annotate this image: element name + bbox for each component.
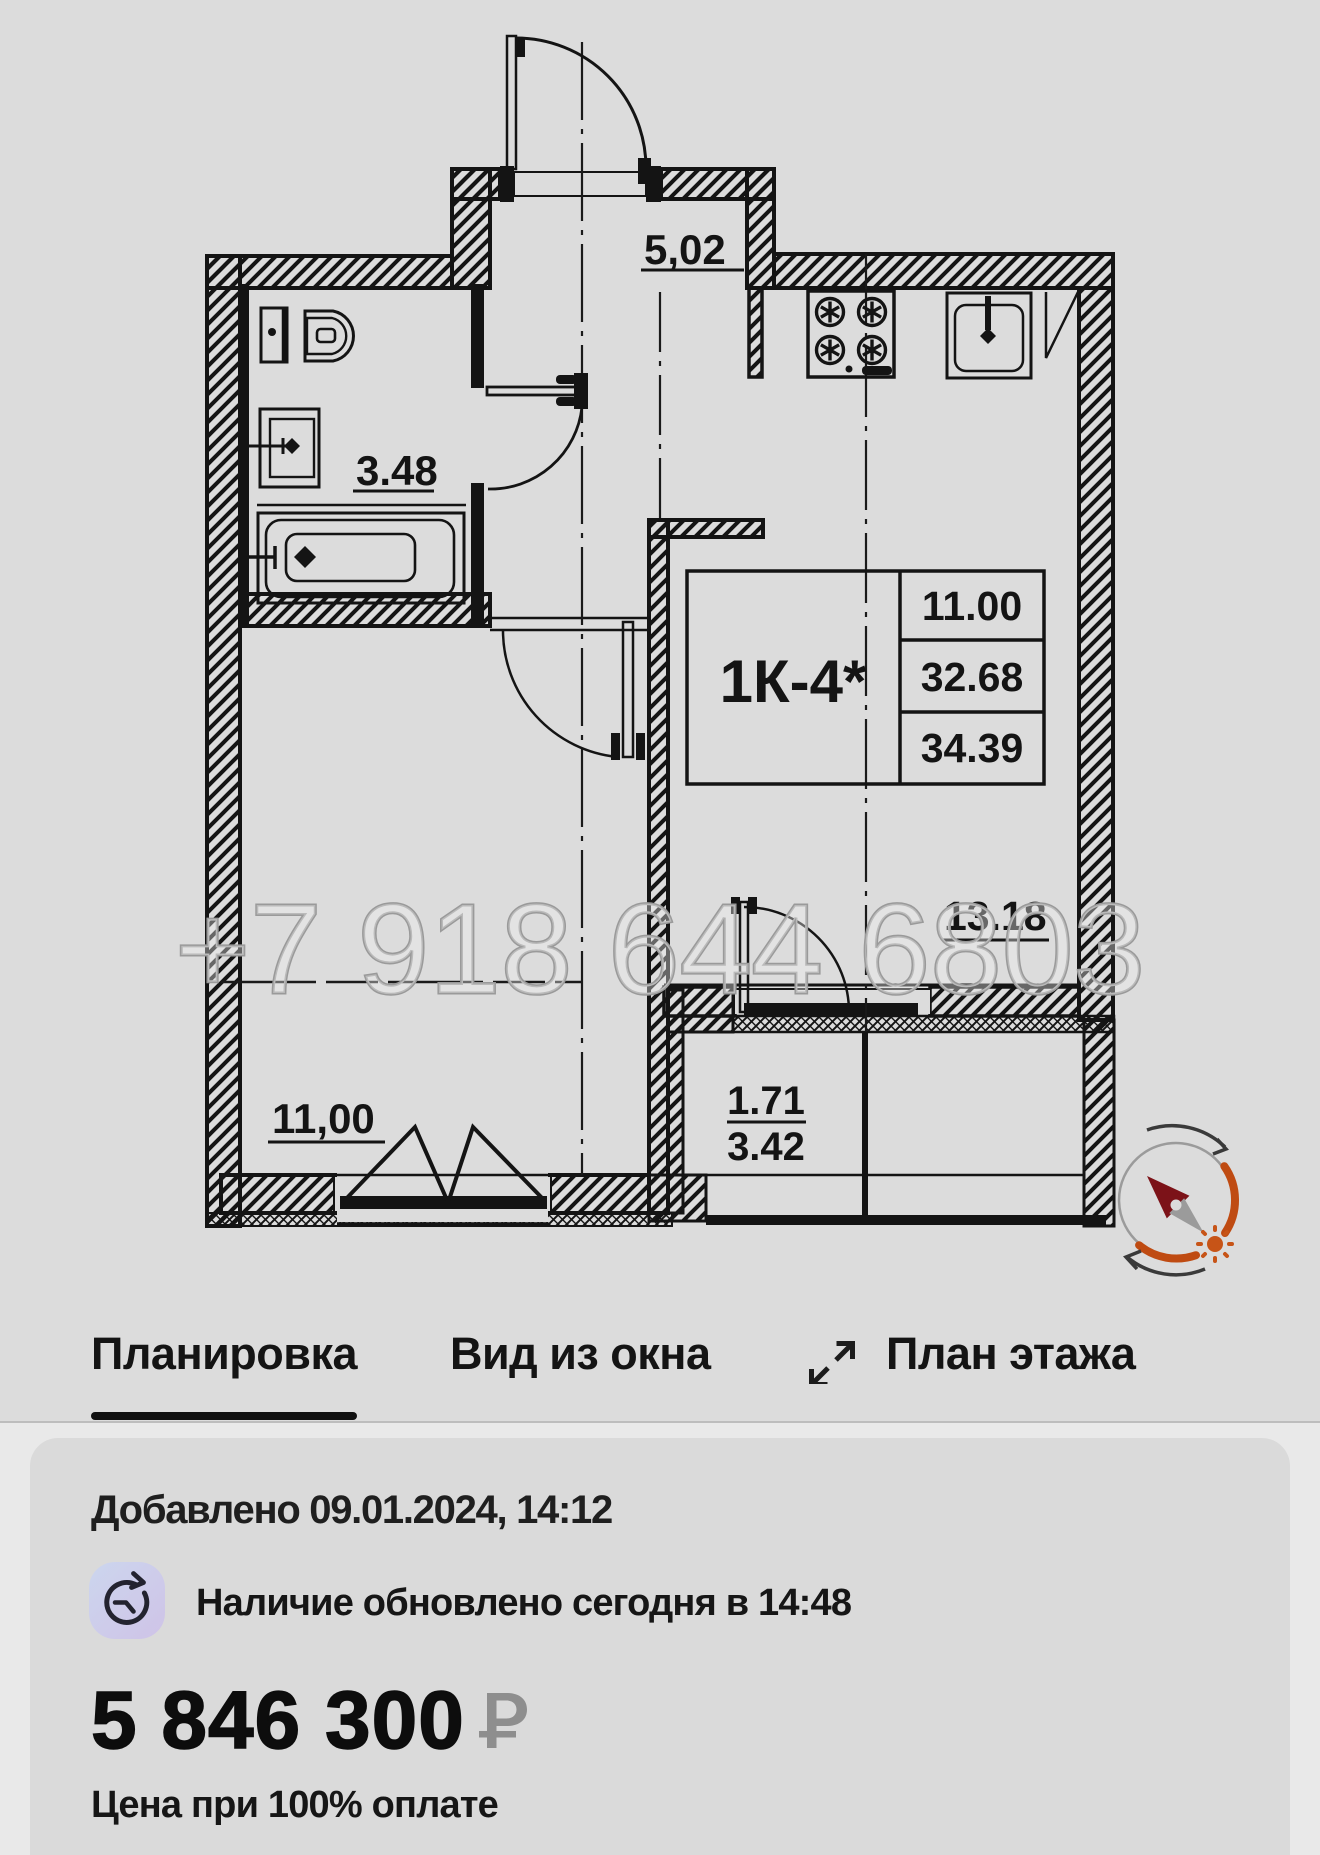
svg-text:3.42: 3.42 [727,1125,805,1169]
svg-text:34.39: 34.39 [921,725,1024,771]
svg-text:32.68: 32.68 [921,654,1024,700]
svg-text:11.00: 11.00 [922,583,1022,629]
svg-text:3.48: 3.48 [356,447,438,494]
svg-text:11,00: 11,00 [272,1095,375,1142]
svg-text:5,02: 5,02 [644,226,726,273]
svg-text:1К-4*: 1К-4* [720,648,867,715]
svg-text:1.71: 1.71 [727,1079,805,1123]
svg-text:+7 918 644 6803: +7 918 644 6803 [175,878,1145,1021]
